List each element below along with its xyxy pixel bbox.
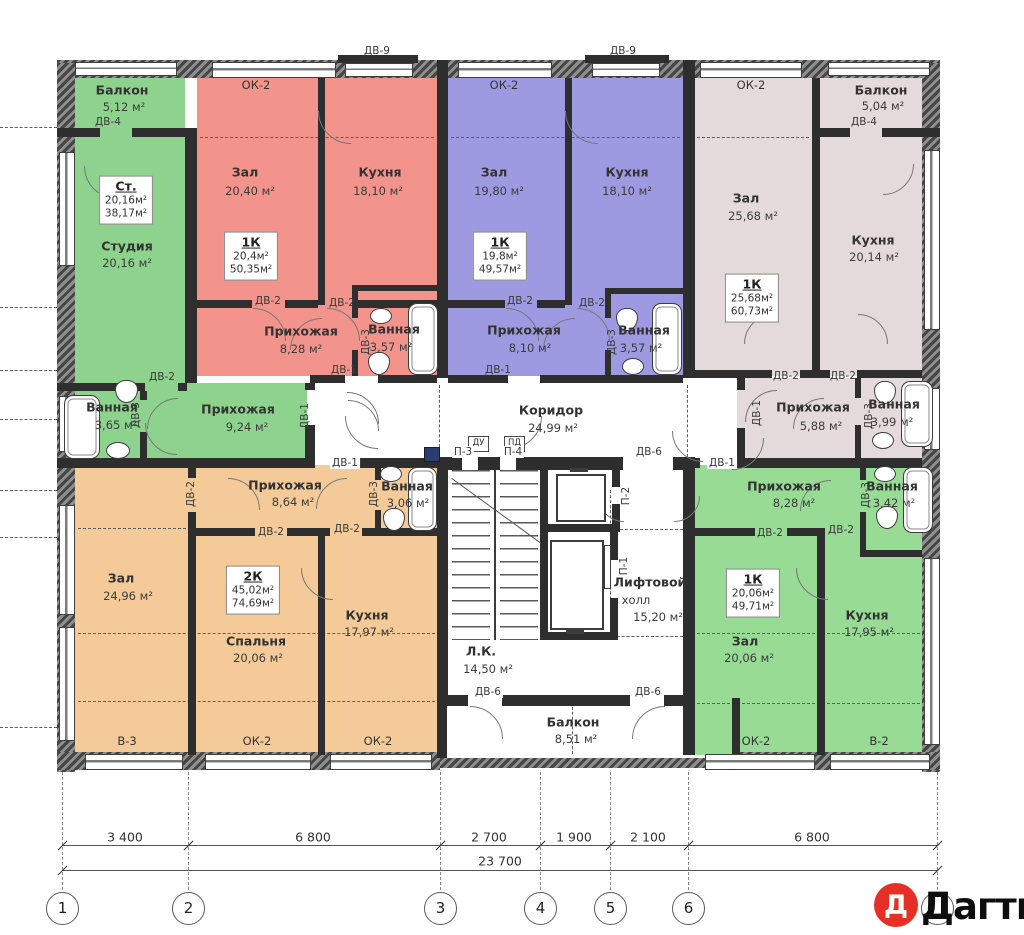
wall (860, 512, 866, 555)
wall (305, 425, 315, 460)
wall (732, 458, 922, 468)
wall (437, 458, 448, 698)
wall (820, 128, 850, 137)
window (59, 152, 75, 266)
orange-bath-area-label: 3,06 м² (387, 496, 430, 510)
wall (605, 288, 685, 294)
wall (57, 128, 100, 137)
orange-type-card: 2К 45,02м² 74,69м² (226, 566, 280, 615)
door-label-dv9: ДВ-9 (364, 45, 390, 57)
wall (448, 300, 505, 308)
door-label-dv2: ДВ-2 (149, 371, 175, 383)
floor-plan: ДУ ПД Балкон 5,12 м² Студия 20,16 м² Ст.… (0, 0, 1024, 935)
shared-hallway-area-label: 9,24 м² (226, 420, 269, 434)
stairs-area-label: 14,50 м² (463, 662, 513, 676)
mauve-total-area: 60,73м² (731, 305, 773, 318)
door-label-dv3: ДВ-3 (863, 403, 875, 429)
mauve-type-card: 1К 25,68м² 60,73м² (725, 274, 779, 323)
mauve-bath-area-label: 3,99 м² (871, 415, 914, 429)
axis-bubble-3: 3 (424, 892, 457, 925)
blue-window-label: ОК-2 (490, 78, 519, 92)
green-hallway-label: Прихожая (747, 479, 821, 494)
lift-hall-area-label: 15,20 м² (633, 610, 683, 624)
green-kitchen-area-label: 17,95 м² (844, 625, 894, 639)
stairs-divider-line (494, 470, 496, 640)
window (205, 754, 311, 770)
wall (695, 370, 772, 378)
axis-line (188, 772, 189, 890)
dimension-6800a: 6 800 (292, 830, 334, 845)
door-label-dv1: ДВ-1 (751, 400, 763, 426)
window (458, 62, 552, 78)
orange-living-area: 45,02м² (232, 584, 274, 597)
wall (540, 462, 548, 640)
window (924, 558, 940, 745)
axis-stub (0, 419, 57, 420)
shared-hallway-label: Прихожая (201, 402, 275, 417)
wall (502, 695, 630, 706)
door-label-dv1: ДВ-1 (330, 457, 360, 469)
door-label-dv3: ДВ-3 (368, 481, 380, 507)
axis-bubble-6: 6 (672, 892, 705, 925)
corridor-label: Коридор (519, 403, 583, 418)
mauve-kitchen-area-label: 20,14 м² (849, 250, 899, 264)
bathtub (652, 303, 682, 375)
wall (478, 457, 500, 470)
door-label-dv2: ДВ-2 (773, 370, 799, 382)
door-label-dv2: ДВ-2 (255, 295, 281, 307)
door-label-dv4: ДВ-4 (851, 116, 877, 128)
red-hall-area-label: 20,40 м² (225, 184, 275, 198)
door-label-dv2: ДВ-2 (828, 524, 854, 536)
wall (305, 383, 315, 390)
orange-bedroom-area-label: 20,06 м² (233, 651, 283, 665)
studio-room-label: Студия (101, 239, 152, 254)
wall (140, 432, 147, 460)
wall (610, 532, 618, 560)
dashed-line (697, 137, 809, 138)
sink (106, 442, 130, 459)
axis-stub (0, 537, 57, 538)
blue-hallway-label: Прихожая (487, 323, 561, 338)
bathtub (408, 303, 438, 375)
orange-hallway-area-label: 8,64 м² (272, 495, 315, 509)
wall (695, 528, 755, 536)
axis-line (937, 772, 938, 890)
dashed-line (697, 703, 920, 704)
blue-total-area: 49,57м² (479, 263, 521, 276)
wall (352, 285, 440, 291)
centre-balcony-label: Балкон (547, 715, 600, 730)
wall (448, 375, 508, 383)
studio-balcony-area-label: 5,12 м² (103, 100, 146, 114)
mauve-hallway-label: Прихожая (776, 400, 850, 415)
mauve-type: 1К (731, 277, 773, 293)
dimension-2700: 2 700 (468, 830, 510, 845)
wall (132, 128, 187, 137)
dimension-1900: 1 900 (553, 830, 595, 845)
green-bath-label: Ванная (866, 479, 918, 494)
panel-label-p4: П-4 (502, 446, 524, 458)
blue-type: 1К (479, 235, 521, 251)
green-type: 1К (732, 572, 774, 588)
stairs-label: Л.К. (466, 644, 496, 659)
door-label-dv3: ДВ-3 (860, 482, 872, 508)
mauve-balcony-area-label: 5,04 м² (862, 99, 905, 113)
dashed-line (78, 701, 435, 702)
window (924, 150, 940, 330)
centre-balcony-area-label: 8,51 м² (555, 732, 598, 746)
wall (188, 465, 196, 478)
wall (537, 300, 565, 308)
wall (310, 375, 345, 383)
window (828, 62, 930, 76)
dimension-line (62, 870, 937, 871)
red-kitchen-area-label: 18,10 м² (353, 184, 403, 198)
studio-balcony-label: Балкон (96, 83, 149, 98)
door-label-dv2: ДВ-2 (334, 523, 360, 535)
wall (855, 425, 861, 460)
studio-room-area-label: 20,16 м² (102, 256, 152, 270)
wall (860, 550, 922, 557)
wall (197, 300, 252, 308)
orange-hall-area-label: 24,96 м² (103, 589, 153, 603)
red-type: 1К (230, 235, 272, 251)
corridor-area-label: 24,99 м² (528, 421, 578, 435)
green-total-area: 49,71м² (732, 600, 774, 613)
blue-hall-label: Зал (481, 165, 507, 180)
green-kitchen-label: Кухня (845, 608, 888, 623)
panel-label-p2: П-2 (620, 487, 632, 505)
wall (812, 78, 820, 375)
studio-living-area: 20,16м² (105, 194, 147, 207)
wall (612, 467, 620, 487)
window (59, 505, 75, 615)
wall (605, 288, 611, 318)
mauve-hallway-area-label: 5,88 м² (800, 419, 843, 433)
axis-stub (0, 727, 57, 728)
axis-bubble-5: 5 (594, 892, 627, 925)
wall (285, 300, 318, 308)
wall (882, 128, 940, 137)
window (592, 63, 660, 77)
wall (664, 695, 695, 706)
studio-type-card: Ст. 20,16м² 38,17м² (99, 176, 153, 225)
wall (185, 128, 197, 383)
elevator-rail (604, 545, 611, 589)
red-hall-label: Зал (232, 165, 258, 180)
door-label-dv2: ДВ-2 (579, 297, 605, 309)
wall (140, 391, 147, 400)
door-label-dv6: ДВ-6 (473, 686, 503, 698)
door-label-dv1: ДВ-1 (485, 364, 511, 376)
mauve-bath-label: Ванная (868, 397, 920, 412)
axis-bubble-4: 4 (524, 892, 557, 925)
green-type-card: 1К 20,06м² 49,71м² (726, 569, 780, 618)
red-hallway-area-label: 8,28 м² (280, 342, 323, 356)
panel-label-p1: П-1 (618, 557, 630, 575)
blue-hallway-area-label: 8,10 м² (509, 341, 552, 355)
window (212, 62, 336, 78)
elevator-cab (556, 474, 606, 522)
blue-bath-label: Ванная (618, 323, 670, 338)
door-label-dv6: ДВ-6 (633, 686, 663, 698)
door-label-dv4: ДВ-4 (95, 116, 121, 128)
door-label-dv2: ДВ-2 (185, 481, 197, 507)
door-label-dv2: ДВ-2 (258, 526, 284, 538)
red-total-area: 50,35м² (230, 263, 272, 276)
orange-window-label-ok2b: ОК-2 (364, 734, 393, 748)
wall (732, 698, 740, 758)
dimension-6800b: 6 800 (791, 830, 833, 845)
mauve-hall-label: Зал (733, 191, 759, 206)
axis-line (610, 772, 611, 890)
orange-hall-label: Зал (108, 571, 134, 586)
axis-bubble-2: 2 (172, 892, 205, 925)
green-window-label-ok2: ОК-2 (742, 734, 771, 748)
door-label-dv2: ДВ-2 (329, 297, 355, 309)
dimension-2100: 2 100 (627, 830, 669, 845)
axis-stub (0, 490, 57, 491)
orange-kitchen-area-label: 17,97 м² (344, 625, 394, 639)
wall (610, 598, 618, 636)
red-bath-label: Ванная (368, 322, 420, 337)
window (700, 62, 802, 78)
studio-type: Ст. (105, 179, 147, 195)
door-label-dv3: ДВ-3 (606, 329, 618, 355)
orange-window-label-v3: В-3 (117, 734, 136, 748)
dashed-line (612, 636, 683, 637)
dimension-3400: 3 400 (104, 830, 146, 845)
orange-total-area: 74,69м² (232, 597, 274, 610)
door-label-dv2: ДВ-2 (830, 370, 856, 382)
window (830, 754, 930, 770)
elevator-door-mark (570, 468, 588, 472)
blue-hall-area-label: 19,80 м² (474, 184, 524, 198)
red-kitchen-label: Кухня (358, 165, 401, 180)
wall (683, 60, 695, 378)
sink (622, 358, 644, 375)
mauve-living-area: 25,68м² (731, 292, 773, 305)
door-label-dv3: ДВ-3 (130, 402, 142, 428)
wall (437, 698, 447, 758)
wall (378, 375, 437, 383)
door-label-dv1: ДВ-1 (299, 403, 311, 429)
balcony-rail (440, 758, 740, 768)
panel-label-p3: П-3 (452, 446, 474, 458)
window (345, 63, 413, 77)
door-arc (672, 400, 734, 462)
mauve-kitchen-label: Кухня (851, 233, 894, 248)
red-window-label: ОК-2 (242, 78, 271, 92)
lift-hall-label2: холл (622, 593, 651, 607)
axis-line (62, 772, 63, 890)
red-bath-area-label: 3,57 м² (370, 340, 413, 354)
wall (860, 465, 866, 480)
axis-line (688, 772, 689, 890)
green-window-label-v2: В-2 (869, 734, 888, 748)
wall (57, 458, 315, 468)
wall (540, 524, 620, 532)
axis-line (540, 772, 541, 890)
green-bath-area-label: 3,42 м² (873, 496, 916, 510)
window (85, 754, 183, 770)
bathtub (901, 381, 933, 447)
wall (188, 512, 196, 755)
door-label-dv2: ДВ-2 (757, 527, 783, 539)
dashed-line (200, 137, 434, 138)
logo-icon: Д (874, 883, 918, 927)
green-hallway-area-label: 8,28 м² (773, 496, 816, 510)
dashed-line (620, 529, 683, 530)
wall (375, 510, 381, 528)
door-label-dv6: ДВ-6 (634, 446, 664, 458)
blue-bath-area-label: 3,57 м² (620, 341, 663, 355)
wall (787, 528, 825, 536)
green-hall-label: Зал (732, 634, 758, 649)
electric-box (424, 447, 440, 462)
lift-hall-label1: Лифтовой (614, 575, 687, 590)
axis-stub (0, 127, 57, 128)
orange-bath-label: Ванная (381, 479, 433, 494)
mauve-balcony-label: Балкон (855, 83, 908, 98)
door-label-dv9: ДВ-9 (610, 45, 636, 57)
blue-kitchen-area-label: 18,10 м² (602, 184, 652, 198)
door-label-dv1: ДВ-1 (331, 364, 357, 376)
window (705, 754, 815, 770)
green-hall-area-label: 20,06 м² (724, 651, 774, 665)
studio-total-area: 38,17м² (105, 207, 147, 220)
wall (800, 370, 830, 378)
axis-bubble-1: 1 (46, 892, 79, 925)
axis-stub (0, 370, 57, 371)
door-label-dv1: ДВ-1 (707, 457, 737, 469)
wall (737, 378, 745, 390)
elevator-cab (550, 540, 604, 630)
logo-text: Дагти (921, 885, 1024, 928)
window (59, 627, 75, 741)
wall (178, 383, 187, 391)
sink (872, 432, 894, 449)
orange-type: 2К (232, 569, 274, 585)
axis-stub (0, 307, 57, 308)
window (330, 754, 432, 770)
green-living-area: 20,06м² (732, 587, 774, 600)
orange-kitchen-label: Кухня (345, 608, 388, 623)
window (75, 62, 177, 76)
red-hallway-label: Прихожая (264, 324, 338, 339)
orange-bedroom-label: Спальня (226, 634, 286, 649)
blue-type-card: 1К 19,8м² 49,57м² (473, 232, 527, 281)
blue-kitchen-label: Кухня (605, 165, 648, 180)
blue-living-area: 19,8м² (479, 250, 521, 263)
orange-window-label-ok2a: ОК-2 (243, 734, 272, 748)
orange-hallway-label: Прихожая (248, 478, 322, 493)
elevator-door-mark (566, 630, 584, 634)
door-label-dv2: ДВ-2 (507, 295, 533, 307)
wall (437, 60, 448, 378)
wall (196, 528, 255, 536)
wall (540, 375, 683, 383)
red-type-card: 1К 20,4м² 50,35м² (224, 232, 278, 281)
red-living-area: 20,4м² (230, 250, 272, 263)
mauve-hall-area-label: 25,68 м² (728, 209, 778, 223)
axis-line (440, 772, 441, 890)
wall (857, 370, 922, 378)
door-label-dv3: ДВ-3 (360, 329, 372, 355)
dimension-line (62, 845, 937, 846)
mauve-window-label: ОК-2 (737, 78, 766, 92)
dashed-line (78, 528, 186, 529)
wall (287, 528, 330, 536)
dimension-total: 23 700 (475, 854, 525, 869)
